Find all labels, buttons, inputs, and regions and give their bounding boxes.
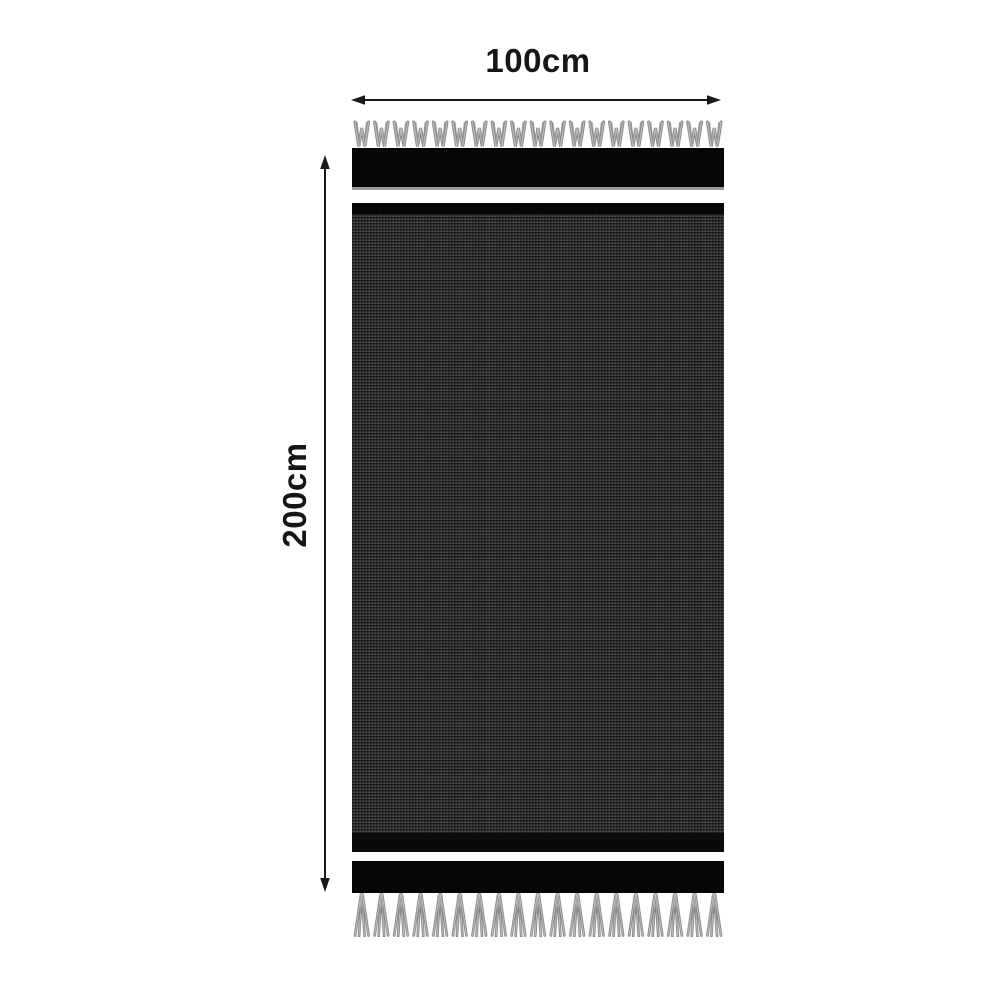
product-dimension-diagram: 100cm 200cm: [0, 0, 1000, 1000]
towel-top-fringe: [352, 120, 724, 148]
towel-top-accent-stripe: [352, 203, 724, 214]
towel-bottom-fringe: [352, 893, 724, 937]
height-dimension-arrow-icon: [317, 154, 333, 893]
width-dimension-label: 100cm: [352, 42, 724, 80]
towel-bottom-accent-stripe: [352, 833, 724, 852]
towel-top-border-band: [352, 148, 724, 190]
towel-bottom-border-band: [352, 861, 724, 893]
height-dimension-label: 200cm: [275, 415, 315, 575]
towel-illustration: [352, 120, 724, 937]
towel-body-fabric: [352, 214, 724, 833]
width-dimension-arrow-icon: [350, 92, 722, 108]
